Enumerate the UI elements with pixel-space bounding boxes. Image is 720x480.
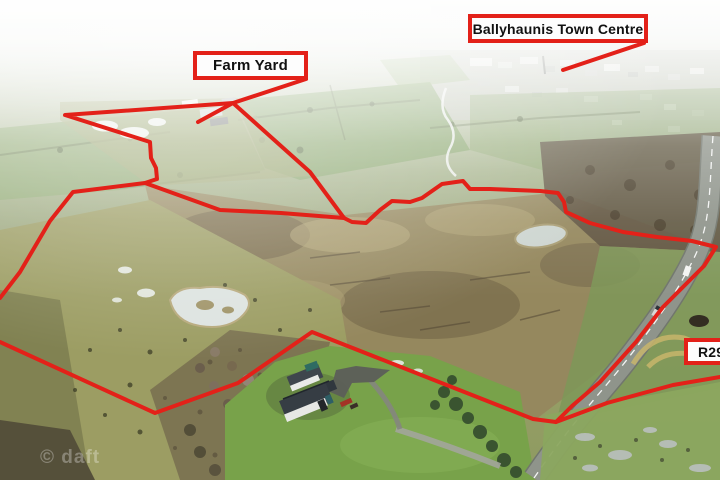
aerial-photo: Farm Yard Ballyhaunis Town Centre R29 © … <box>0 0 720 480</box>
aerial-photo-canvas <box>0 0 720 480</box>
road-label: R29 <box>684 338 720 365</box>
watermark: © daft <box>40 447 100 469</box>
town-centre-label: Ballyhaunis Town Centre <box>468 14 648 43</box>
farm-yard-label: Farm Yard <box>193 51 308 80</box>
terrain <box>0 0 720 480</box>
